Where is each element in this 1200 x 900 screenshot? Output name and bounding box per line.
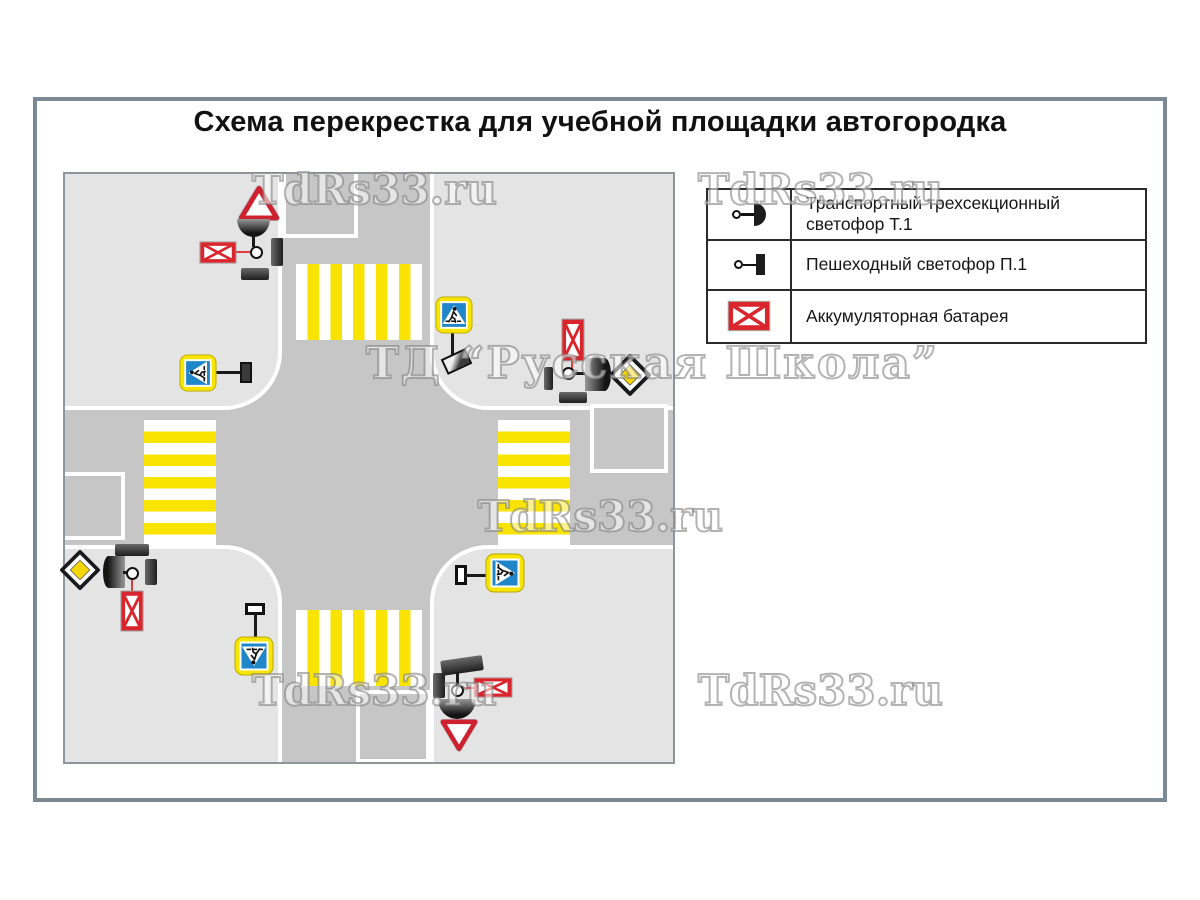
pole-line-icon bbox=[741, 213, 754, 216]
pedestrian-crossing-sign-icon bbox=[234, 636, 274, 676]
battery-icon bbox=[199, 241, 237, 264]
give-way-sign-icon bbox=[238, 185, 280, 221]
legend-row: Транспортный трехсекционный светофор Т.1 bbox=[708, 190, 1145, 241]
light-dome-icon bbox=[754, 203, 766, 226]
t1-traffic-light-dome bbox=[237, 219, 270, 237]
pedestrian-crossing-sign-icon bbox=[435, 296, 473, 334]
p1-pedestrian-light bbox=[240, 362, 252, 383]
battery-icon bbox=[473, 677, 513, 698]
signal-head-bar bbox=[440, 655, 484, 676]
t1-traffic-light-dome bbox=[438, 699, 476, 719]
main-road-sign-icon bbox=[58, 548, 102, 592]
battery-icon bbox=[708, 291, 792, 342]
legend-table: Транспортный трехсекционный светофор Т.1… bbox=[706, 188, 1147, 344]
signal-head-bar bbox=[271, 238, 283, 266]
page-title: Схема перекрестка для учебной площадки а… bbox=[0, 106, 1200, 139]
legend-label: Пешеходный светофор П.1 bbox=[792, 241, 1145, 290]
joint-circle-icon bbox=[734, 260, 743, 269]
signal-head-bar bbox=[145, 559, 157, 585]
t1-traffic-light-dome bbox=[103, 556, 125, 588]
joint-circle-icon bbox=[732, 210, 741, 219]
signal-head-bar bbox=[115, 544, 149, 556]
signs-layer bbox=[65, 174, 673, 762]
legend-row: Пешеходный светофор П.1 bbox=[708, 241, 1145, 292]
battery-glyph bbox=[727, 300, 771, 332]
signal-head-bar bbox=[241, 268, 269, 280]
pedestrian-crossing-sign-icon bbox=[485, 553, 525, 593]
pole-joint bbox=[250, 246, 263, 259]
signal-head-bar bbox=[433, 673, 445, 698]
battery-icon bbox=[120, 590, 144, 632]
light-box-icon bbox=[756, 254, 765, 275]
signal-head-bar bbox=[559, 392, 587, 403]
legend-row: Аккумуляторная батарея bbox=[708, 291, 1145, 342]
light-pole bbox=[254, 614, 257, 637]
signal-head-bar bbox=[544, 367, 553, 390]
light-pole bbox=[465, 574, 487, 577]
p1-pedestrian-light-icon bbox=[708, 241, 792, 290]
legend-label: Аккумуляторная батарея bbox=[792, 291, 1145, 342]
main-road-sign-icon bbox=[607, 352, 653, 398]
pole-line-icon bbox=[743, 264, 756, 267]
p1-pedestrian-light bbox=[441, 348, 473, 375]
pole-joint bbox=[126, 567, 139, 580]
pedestrian-crossing-sign-icon bbox=[179, 354, 217, 392]
battery-icon bbox=[561, 318, 585, 362]
page: Схема перекрестка для учебной площадки а… bbox=[0, 0, 1200, 900]
legend-label: Транспортный трехсекционный светофор Т.1 bbox=[792, 190, 1145, 239]
t1-traffic-light-icon bbox=[708, 190, 792, 239]
light-pole bbox=[216, 371, 242, 374]
give-way-sign-icon bbox=[440, 719, 478, 752]
pole-joint bbox=[562, 367, 575, 380]
pole-joint bbox=[451, 684, 464, 697]
intersection-map bbox=[63, 172, 675, 764]
